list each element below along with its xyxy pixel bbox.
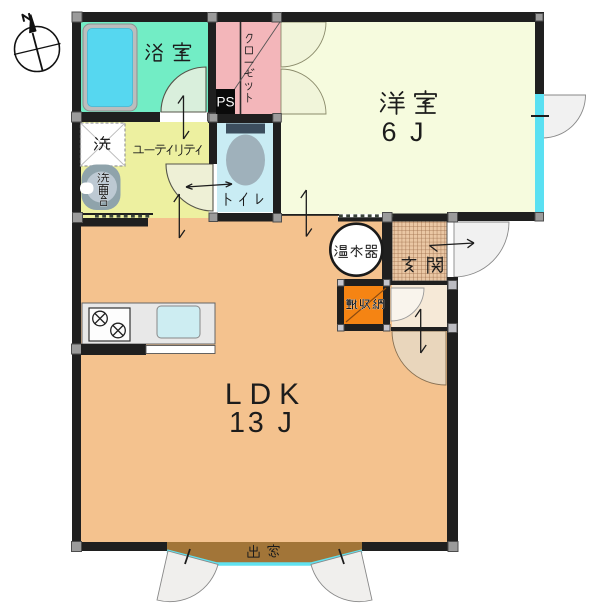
svg-text:13 J: 13 J <box>229 407 295 439</box>
svg-text:PS: PS <box>216 95 234 110</box>
svg-text:6 J: 6 J <box>381 117 426 147</box>
